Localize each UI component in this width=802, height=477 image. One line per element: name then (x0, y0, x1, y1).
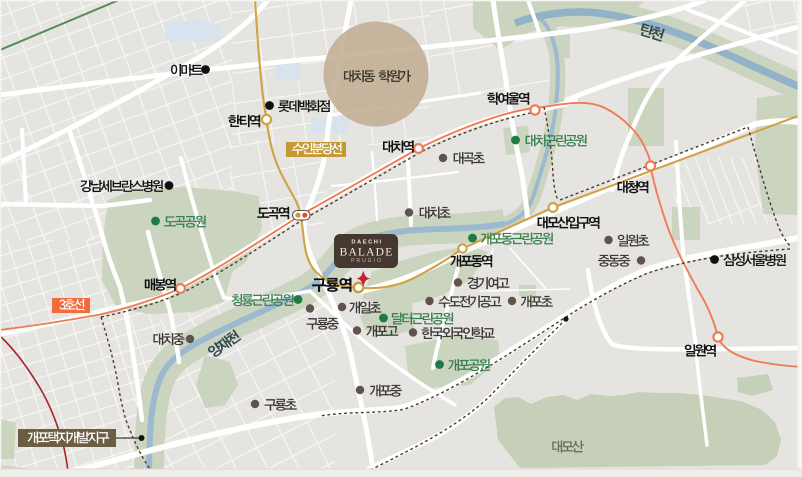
svg-text:DAECHI: DAECHI (351, 240, 382, 246)
svg-text:BALADE: BALADE (340, 247, 394, 259)
svg-text:PRUGIO: PRUGIO (351, 258, 383, 264)
